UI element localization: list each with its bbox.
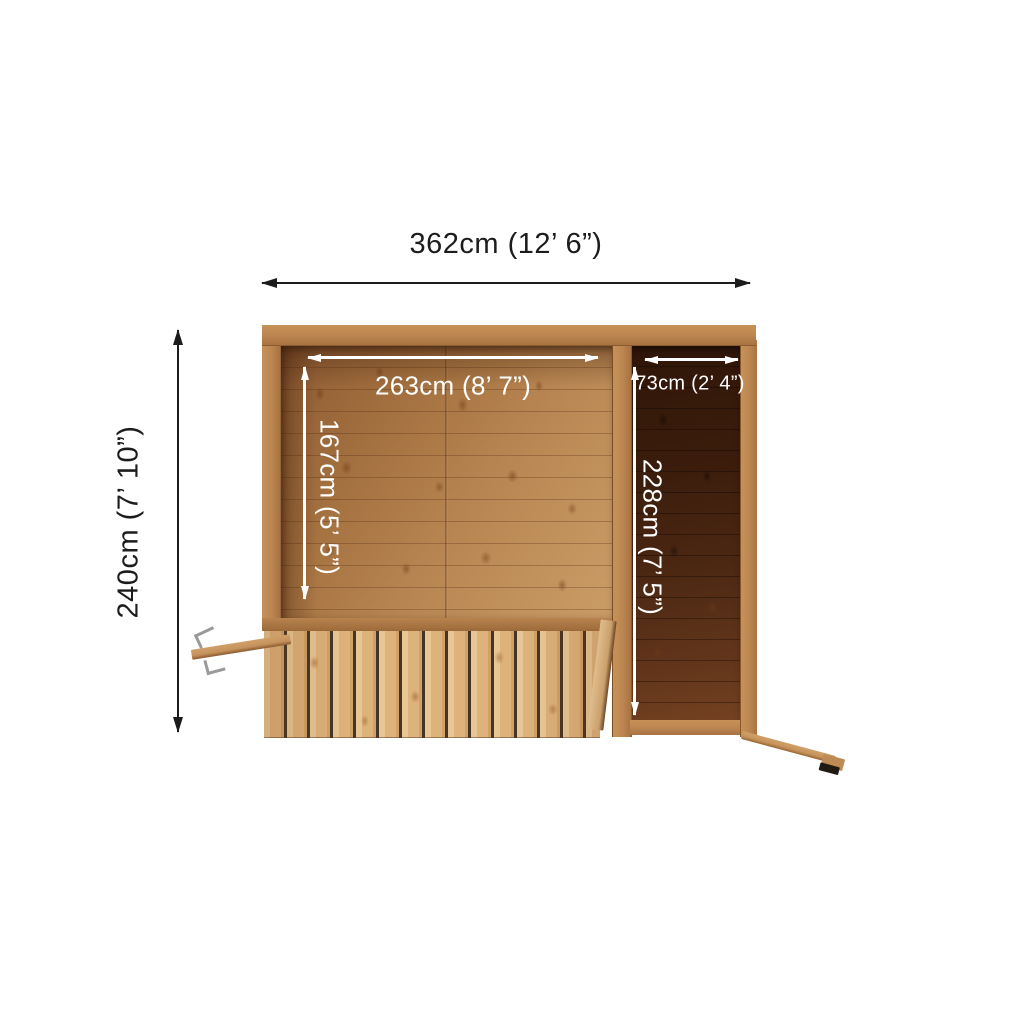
main-room-width-arrow: [308, 356, 598, 359]
serving-hatch-flap-open: [191, 624, 293, 676]
garden-bar-top-view: 263cm (8’ 7”) 73cm (2’ 4”) 167cm (5’ 5”)…: [262, 325, 756, 737]
side-room-width-label: 73cm (2’ 4”): [635, 373, 745, 396]
overall-depth-label: 240cm (7’ 10”): [113, 426, 146, 619]
main-room-width-label: 263cm (8’ 7”): [375, 371, 531, 402]
dimension-diagram: 362cm (12’ 6”) 240cm (7’ 10”) 263cm (8’ …: [0, 0, 1024, 1024]
side-door-board: [741, 731, 836, 764]
overall-depth-arrow: [177, 330, 179, 732]
overall-width-arrow: [262, 282, 750, 284]
side-room-front-wall: [630, 720, 740, 735]
bar-front-slatted-panel: [264, 631, 600, 738]
main-room-depth-arrow: [303, 367, 306, 599]
metal-bracket-icon: [203, 656, 225, 675]
main-room-front-rail: [262, 618, 612, 631]
side-room-depth-label: 228cm (7’ 5”): [637, 459, 668, 615]
side-door-open: [742, 731, 862, 781]
right-wall: [740, 340, 757, 737]
back-wall: [262, 325, 756, 346]
side-room-width-arrow: [645, 358, 738, 361]
main-room-depth-label: 167cm (5’ 5”): [314, 419, 345, 575]
partition-wall: [612, 340, 632, 737]
left-wall: [262, 340, 281, 630]
overall-width-label: 362cm (12’ 6”): [262, 228, 750, 261]
